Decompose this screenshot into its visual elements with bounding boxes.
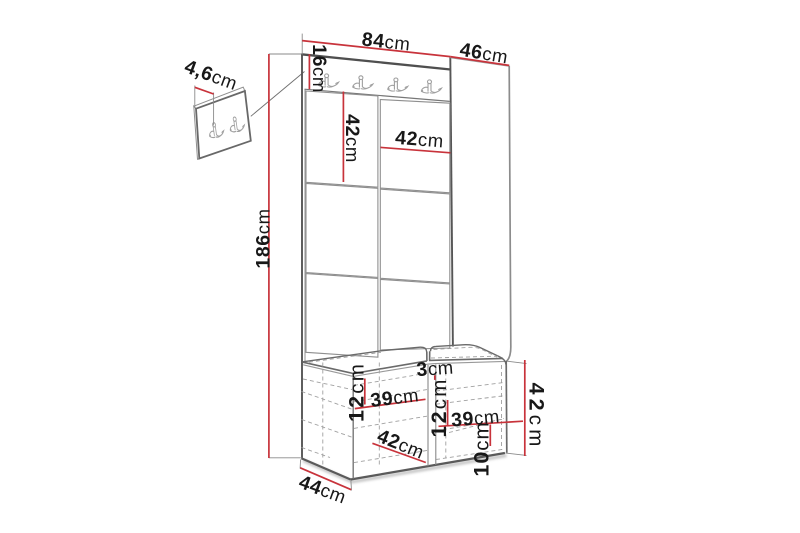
svg-text:10cm: 10cm	[470, 421, 494, 476]
svg-text:12cm: 12cm	[344, 362, 368, 422]
svg-text:16cm: 16cm	[308, 44, 330, 93]
svg-text:3cm: 3cm	[416, 357, 455, 382]
svg-text:42cm: 42cm	[394, 127, 444, 153]
svg-text:186cm: 186cm	[252, 208, 274, 268]
svg-text:42cm: 42cm	[341, 114, 363, 163]
svg-text:12cm: 12cm	[427, 377, 451, 437]
svg-text:42cm: 42cm	[525, 382, 549, 450]
